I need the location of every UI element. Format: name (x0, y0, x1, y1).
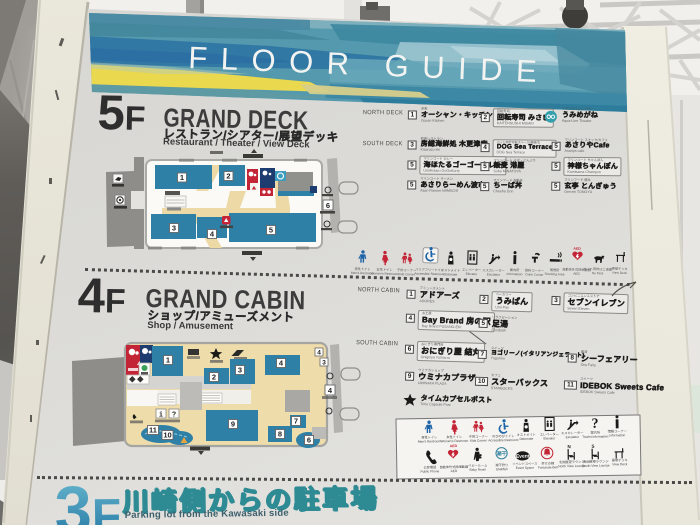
svg-text:Baby Room: Baby Room (469, 468, 486, 472)
svg-text:Information: Information (506, 272, 522, 276)
svg-text:S: S (591, 444, 594, 449)
svg-text:N: N (567, 444, 570, 449)
svg-text:Kids Corner: Kids Corner (470, 438, 488, 442)
svg-text:AED: AED (450, 444, 458, 448)
svg-text:Fortunate Bell: Fortunate Bell (538, 465, 558, 469)
svg-text:Escalator: Escalator (566, 435, 580, 439)
svg-text:Ostomate: Ostomate (443, 272, 457, 276)
svg-text:Ostomate: Ostomate (519, 437, 533, 441)
svg-text:Accessible Restroom: Accessible Restroom (414, 272, 444, 277)
svg-text:Escalator: Escalator (487, 272, 501, 276)
svg-text:Information: Information (609, 433, 625, 437)
svg-text:Elevator: Elevator (466, 272, 479, 276)
svg-text:Event Space: Event Space (516, 466, 534, 470)
svg-text:Men's Restroom: Men's Restroom (418, 439, 442, 443)
svg-text:Accessible Restroom: Accessible Restroom (488, 438, 518, 443)
svg-text:Drink Corner: Drink Corner (525, 272, 544, 276)
svg-text:View Deck: View Deck (612, 462, 627, 466)
svg-text:Women's Restroom: Women's Restroom (440, 439, 468, 443)
svg-text:Smoking Area: Smoking Area (545, 272, 565, 277)
svg-text:Tourist Information: Tourist Information (582, 434, 609, 438)
svg-text:Public Phone: Public Phone (420, 469, 439, 473)
svg-text:No Pets: No Pets (592, 271, 604, 275)
svg-text:AED: AED (573, 247, 581, 251)
svg-text:AED: AED (573, 272, 580, 276)
svg-text:AED: AED (451, 469, 458, 473)
svg-text:Shellfish: Shellfish (496, 467, 508, 471)
svg-text:View Deck: View Deck (612, 271, 628, 275)
svg-text:South View Lounge: South View Lounge (582, 463, 610, 467)
svg-text:Elevator: Elevator (543, 436, 556, 440)
